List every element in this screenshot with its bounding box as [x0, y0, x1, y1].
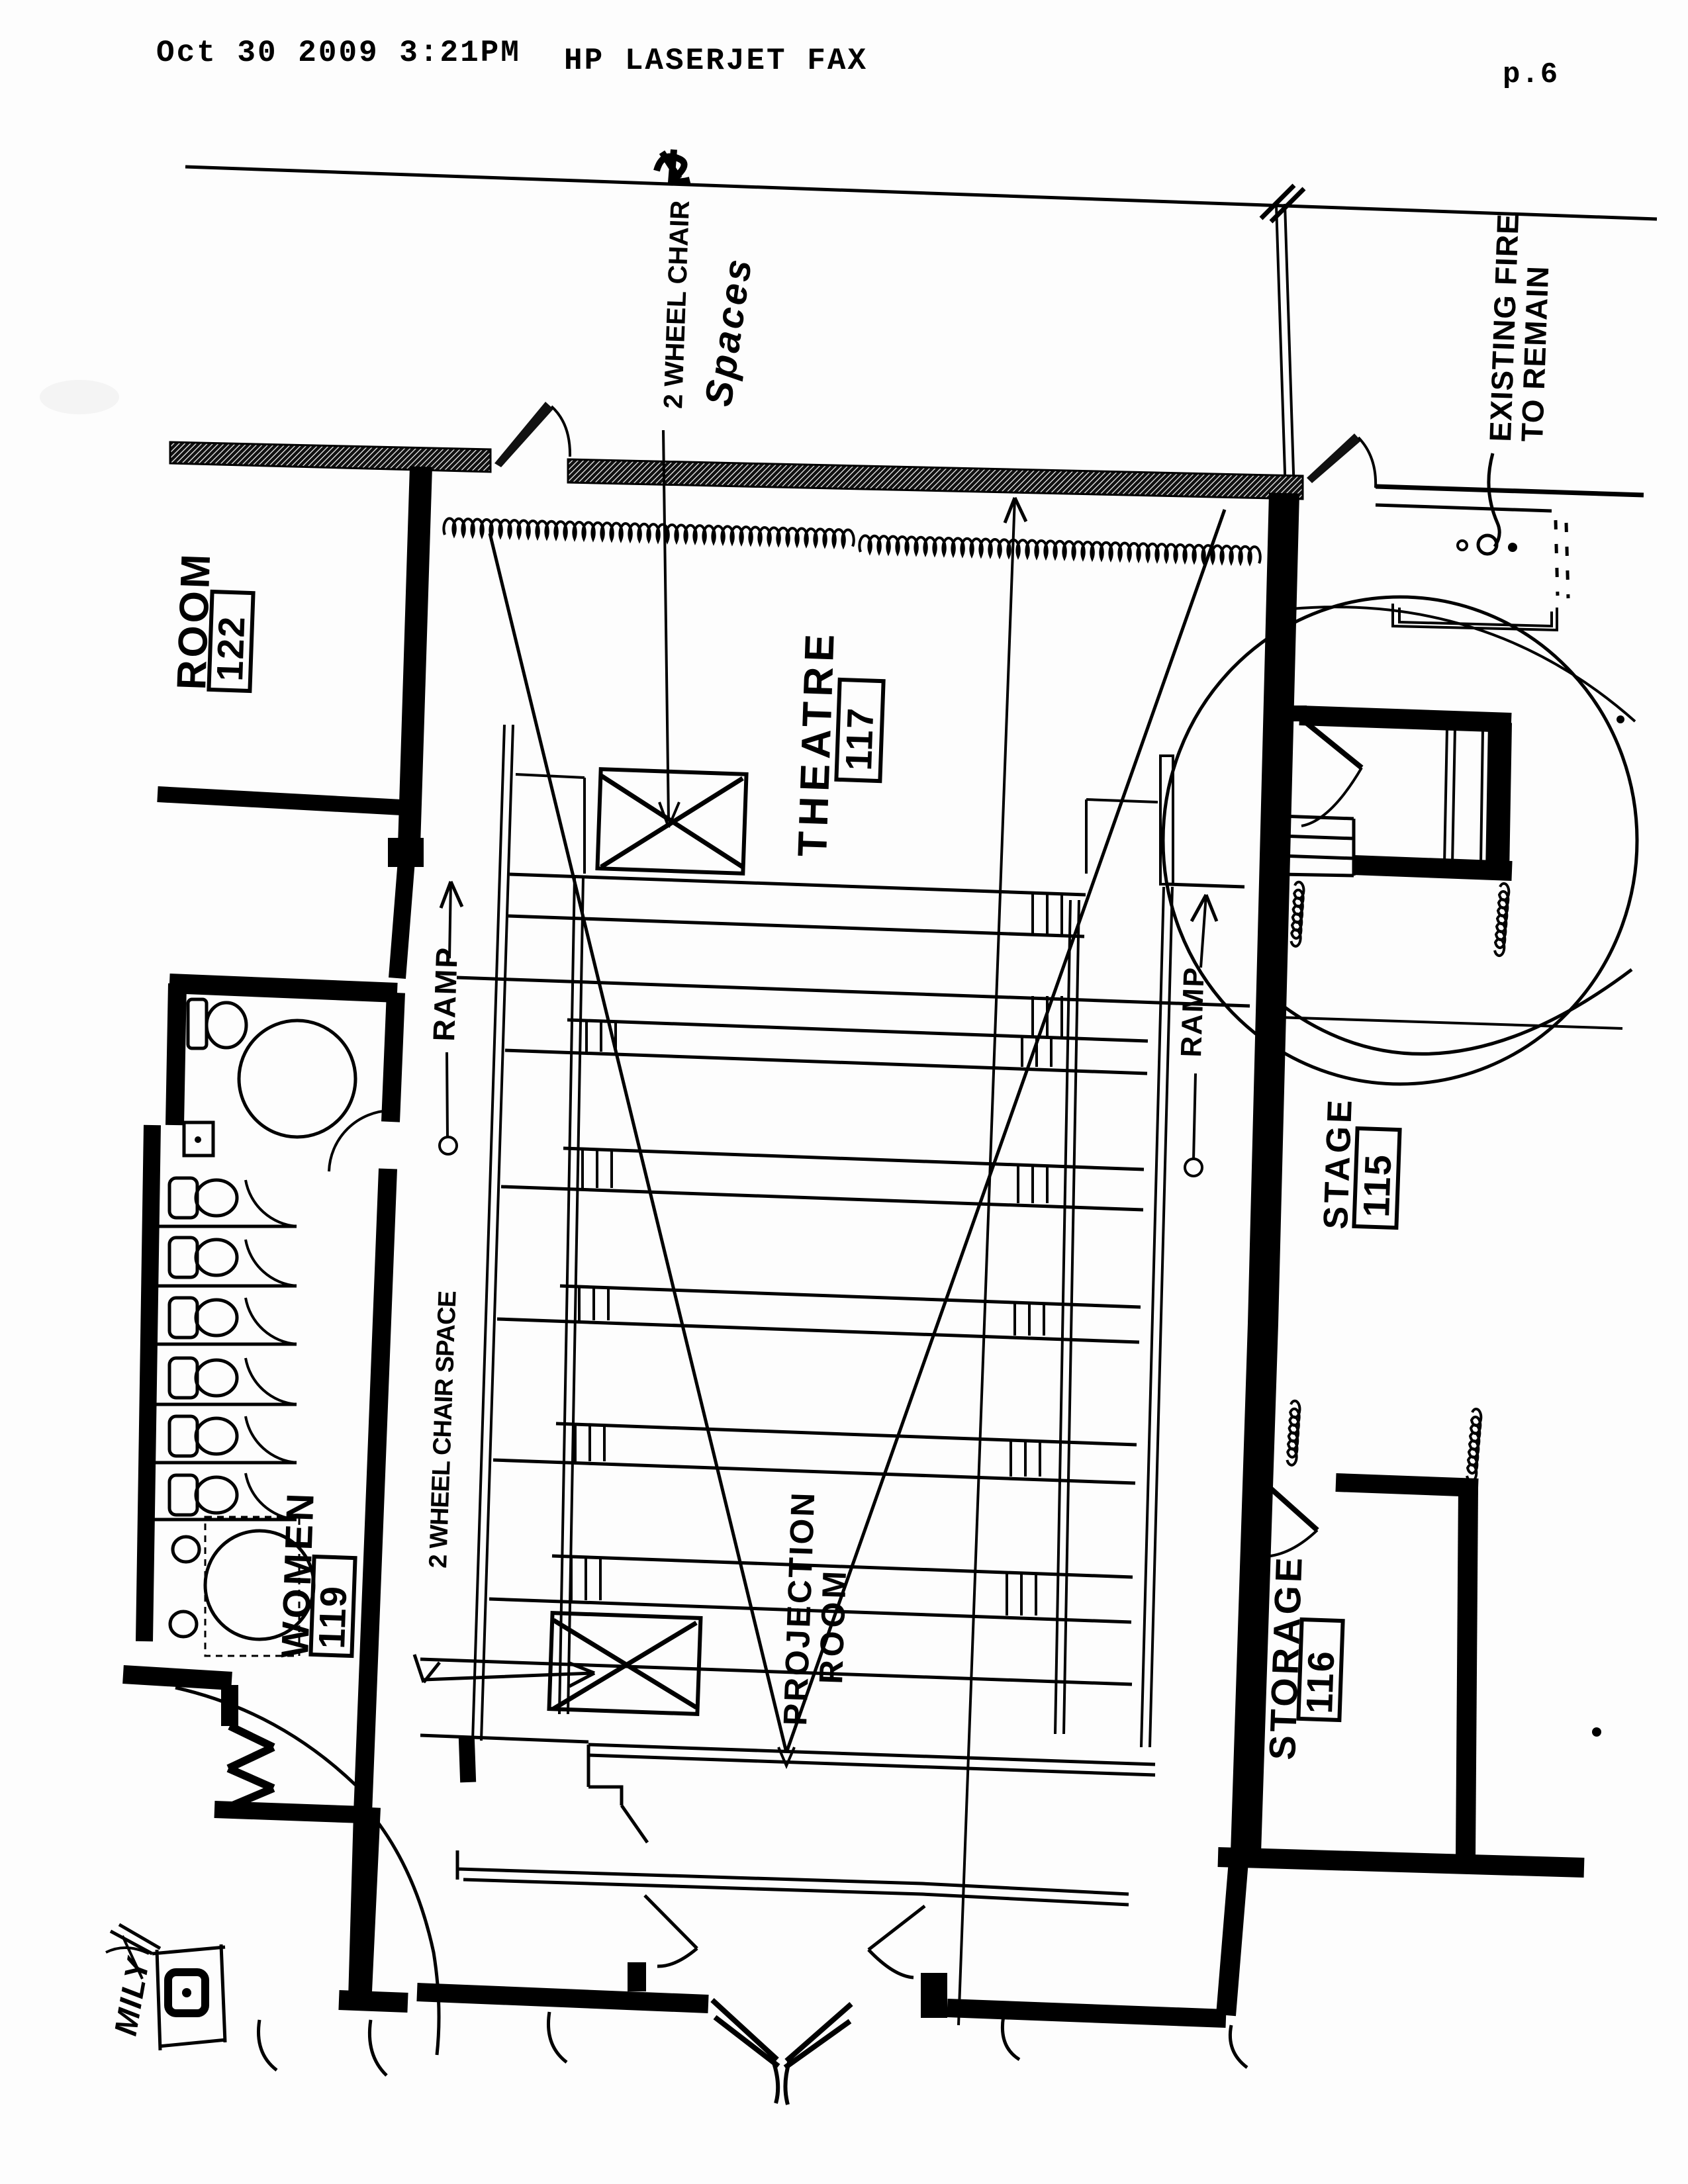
- svg-text:TO REMAIN: TO REMAIN: [1515, 265, 1555, 442]
- svg-text:116: 116: [1298, 1649, 1342, 1714]
- svg-text:119: 119: [310, 1584, 354, 1649]
- svg-text:RAMP: RAMP: [426, 946, 464, 1042]
- svg-text:115: 115: [1355, 1153, 1399, 1218]
- svg-text:122: 122: [209, 615, 252, 682]
- svg-text:THEATRE: THEATRE: [790, 628, 843, 857]
- svg-text:HP LASERJET FAX: HP LASERJET FAX: [564, 44, 868, 78]
- svg-text:117: 117: [837, 706, 881, 771]
- svg-text:Oct 30 2009 3:21PM: Oct 30 2009 3:21PM: [156, 36, 521, 70]
- svg-text:ROOM: ROOM: [812, 1567, 853, 1684]
- svg-text:p.6: p.6: [1503, 58, 1559, 91]
